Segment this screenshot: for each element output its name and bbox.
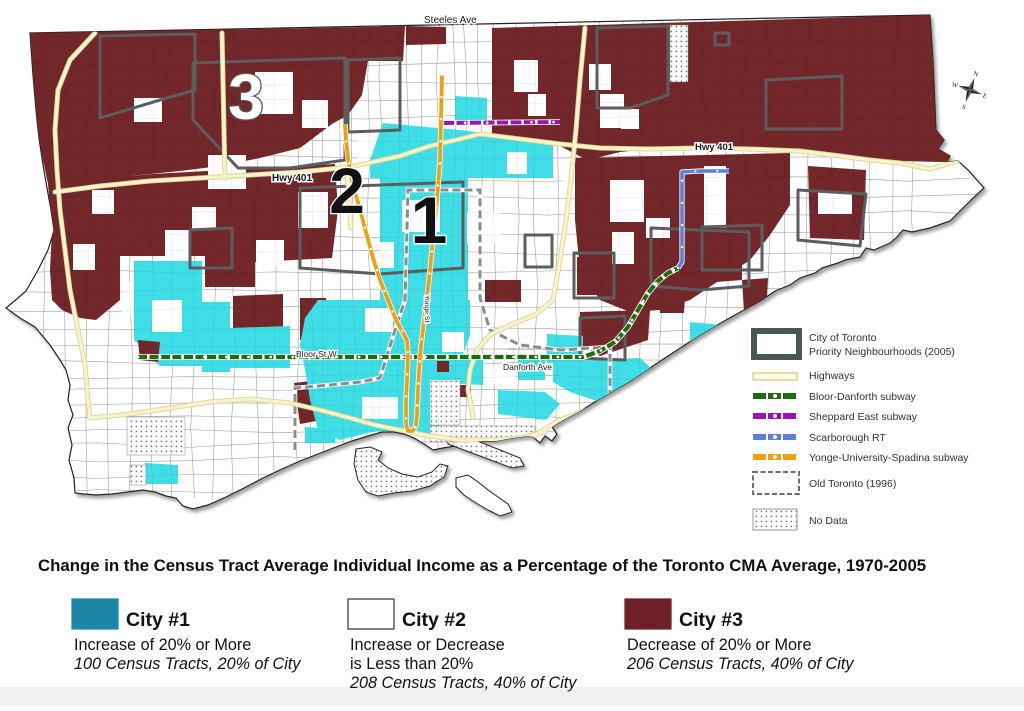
svg-text:Bloor-Danforth subway: Bloor-Danforth subway [809,391,917,403]
svg-text:City #1: City #1 [126,609,190,631]
svg-text:Priority Neighbourhoods (2005): Priority Neighbourhoods (2005) [809,346,955,358]
svg-text:No Data: No Data [809,515,848,527]
svg-text:Steeles Ave: Steeles Ave [424,15,477,26]
svg-text:3: 3 [228,61,264,133]
svg-text:Scarborough RT: Scarborough RT [809,432,886,444]
svg-text:1: 1 [411,183,448,257]
svg-text:208 Census Tracts, 40% of City: 208 Census Tracts, 40% of City [349,674,577,692]
svg-text:Decrease of 20% or More: Decrease of 20% or More [627,636,811,654]
svg-text:100 Census Tracts, 20% of City: 100 Census Tracts, 20% of City [74,655,301,673]
svg-text:Bloor St W: Bloor St W [296,349,337,359]
svg-text:Old Toronto (1996): Old Toronto (1996) [809,478,896,490]
svg-text:map: J.D. Hulchanski, Cities C: map: J.D. Hulchanski, Cities Centre [508,346,572,351]
svg-text:Sheppard East subway: Sheppard East subway [809,411,918,423]
svg-text:Change in the Census Tract Ave: Change in the Census Tract Average Indiv… [38,556,926,575]
svg-text:is Less than 20%: is Less than 20% [350,655,473,673]
svg-text:Increase or Decrease: Increase or Decrease [350,636,505,654]
svg-text:Yonge St: Yonge St [423,295,430,322]
svg-text:Hwy 401: Hwy 401 [272,173,312,184]
svg-text:City #3: City #3 [679,609,743,631]
svg-text:Hwy 401: Hwy 401 [695,142,734,153]
svg-text:City #2: City #2 [402,609,466,631]
svg-text:City of Toronto: City of Toronto [809,332,877,344]
svg-text:Increase of 20% or More: Increase of 20% or More [74,636,251,654]
svg-text:206 Census Tracts, 40% of City: 206 Census Tracts, 40% of City [626,655,854,673]
svg-text:Danforth Ave: Danforth Ave [503,362,552,372]
svg-text:Highways: Highways [809,370,855,382]
svg-text:2: 2 [329,155,365,227]
svg-text:Yonge-University-Spadina subwa: Yonge-University-Spadina subway [809,452,969,464]
